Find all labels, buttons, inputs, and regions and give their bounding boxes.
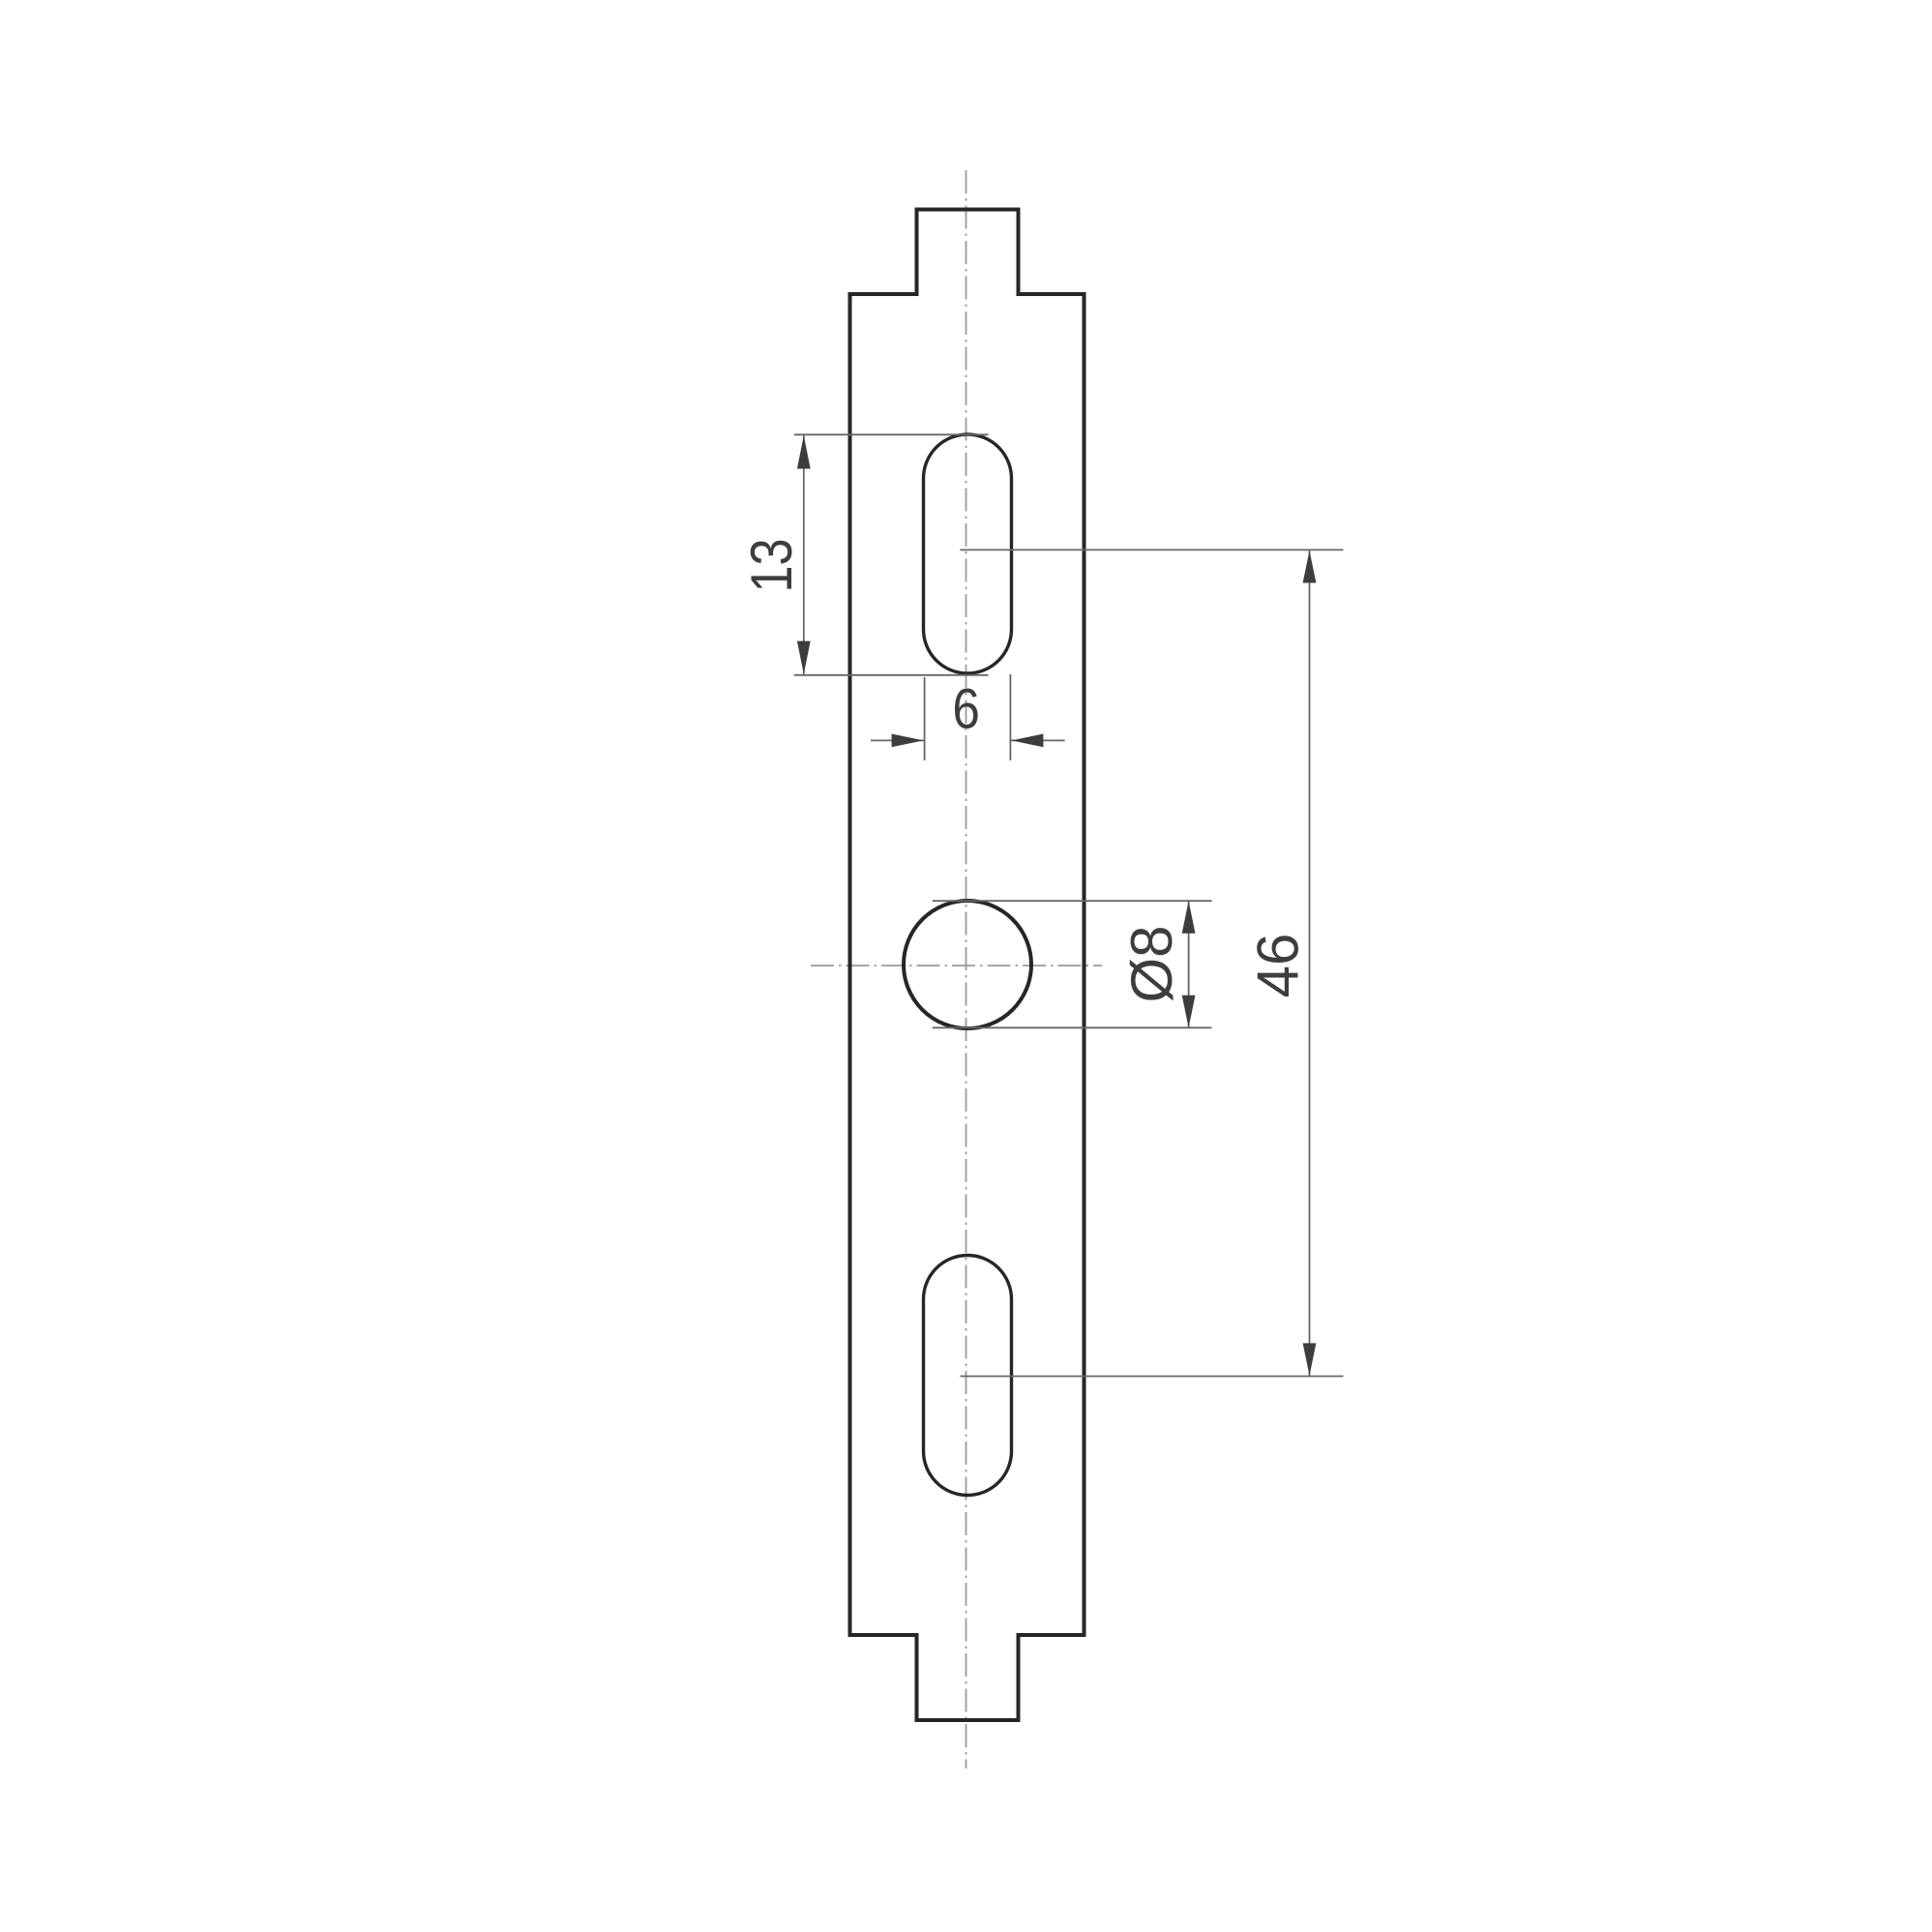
svg-text:6: 6: [952, 678, 980, 741]
svg-text:Ø8: Ø8: [1119, 925, 1184, 1002]
svg-text:13: 13: [739, 539, 804, 593]
svg-text:46: 46: [1246, 934, 1311, 998]
